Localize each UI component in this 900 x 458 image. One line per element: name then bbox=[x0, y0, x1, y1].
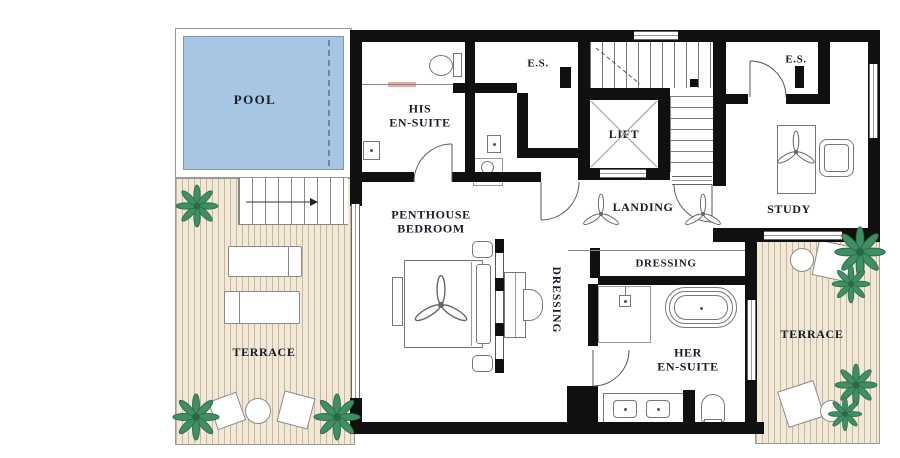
sliding-door bbox=[764, 231, 842, 240]
door-arc-her-ensuite bbox=[593, 350, 629, 386]
wall-her-ensuite-west bbox=[588, 284, 598, 346]
sink bbox=[363, 141, 380, 160]
lift-door bbox=[600, 169, 646, 178]
stair-newel-marker bbox=[690, 79, 698, 87]
dressing-corridor-label: DRESSING bbox=[550, 267, 562, 334]
penthouse-bedroom-label: PENTHOUSE BEDROOM bbox=[391, 208, 470, 237]
sun-lounger bbox=[224, 291, 300, 324]
wall-top bbox=[350, 30, 880, 42]
terrace-table bbox=[245, 398, 271, 424]
toilet-cistern bbox=[453, 53, 462, 77]
terrace-left-label: TERRACE bbox=[233, 345, 296, 359]
door-arc-bedroom bbox=[541, 182, 579, 220]
es-right-label: E.S. bbox=[785, 53, 806, 66]
lift-label: LIFT bbox=[609, 127, 639, 141]
window bbox=[634, 31, 678, 40]
glazed-wall bbox=[351, 204, 360, 398]
toilet bbox=[429, 55, 453, 76]
terrace-right-label: TERRACE bbox=[781, 327, 844, 341]
landing-label: LANDING bbox=[613, 200, 674, 214]
desk bbox=[777, 125, 816, 194]
wall-left-pier bbox=[350, 182, 362, 206]
armchair bbox=[523, 289, 543, 321]
wardrobe-line bbox=[568, 250, 745, 251]
wall-bottom bbox=[350, 422, 764, 434]
desk-chair bbox=[819, 139, 854, 177]
wall-lift-north bbox=[578, 88, 670, 100]
his-ensuite-label: HIS EN-SUITE bbox=[389, 102, 450, 131]
bed bbox=[404, 260, 483, 348]
dressing-room-label: DRESSING bbox=[635, 257, 696, 270]
wall-vanity-pier bbox=[683, 390, 695, 424]
staircase-lower-flight bbox=[670, 96, 713, 172]
wall-corner-block bbox=[567, 386, 598, 424]
wall-es-right-south bbox=[726, 94, 748, 104]
wall-his-ensuite-east bbox=[465, 42, 475, 172]
bed-pillows bbox=[476, 264, 491, 344]
shower bbox=[598, 286, 651, 343]
floor-plan: POOL TERRACE TERRACE HIS EN-SUITE E.S. E… bbox=[0, 0, 900, 458]
wall-es-right-east bbox=[818, 30, 830, 102]
terrace-table bbox=[820, 400, 842, 422]
sun-lounger bbox=[228, 246, 302, 277]
window bbox=[869, 64, 878, 138]
wall-landing-pier bbox=[516, 172, 541, 182]
wall-his-ensuite-south bbox=[350, 172, 414, 182]
headboard-wall bbox=[495, 239, 504, 373]
vanity-counter bbox=[603, 393, 685, 423]
partition-line bbox=[362, 84, 465, 85]
terrace-chair bbox=[812, 240, 855, 283]
es-left-label: E.S. bbox=[527, 57, 548, 70]
wall-dressing-pier bbox=[590, 248, 600, 278]
bedside-table bbox=[472, 241, 493, 258]
ceiling-fan-icon bbox=[684, 194, 721, 226]
pool-lane-line bbox=[328, 40, 330, 166]
wall-es-left bbox=[517, 93, 528, 148]
outdoor-steps bbox=[238, 178, 348, 225]
her-ensuite-label: HER EN-SUITE bbox=[657, 346, 718, 375]
wall-es-left-south bbox=[517, 148, 580, 158]
pool-label: POOL bbox=[234, 92, 276, 108]
wall-stair-east bbox=[713, 30, 726, 186]
pedestal-sink bbox=[487, 135, 501, 153]
door-arc-study bbox=[674, 184, 712, 222]
bathtub bbox=[665, 287, 737, 328]
duct-marker bbox=[795, 66, 804, 88]
door-arc-his-ensuite bbox=[414, 144, 452, 182]
door-arc-es-right bbox=[750, 61, 786, 97]
wall-lift-east bbox=[658, 88, 670, 180]
wall-dressing-south bbox=[598, 276, 745, 285]
toilet bbox=[701, 394, 725, 422]
door-threshold bbox=[672, 176, 712, 185]
duct-marker bbox=[560, 67, 571, 88]
study-label: STUDY bbox=[767, 202, 811, 216]
wall-wc-nook bbox=[453, 83, 517, 93]
wall-es-right-south bbox=[786, 94, 830, 104]
wall-stair-west bbox=[578, 30, 590, 180]
bed-bench bbox=[392, 277, 403, 326]
terrace-table bbox=[790, 248, 814, 272]
bedside-table bbox=[472, 355, 493, 372]
glazed-door bbox=[747, 300, 756, 380]
